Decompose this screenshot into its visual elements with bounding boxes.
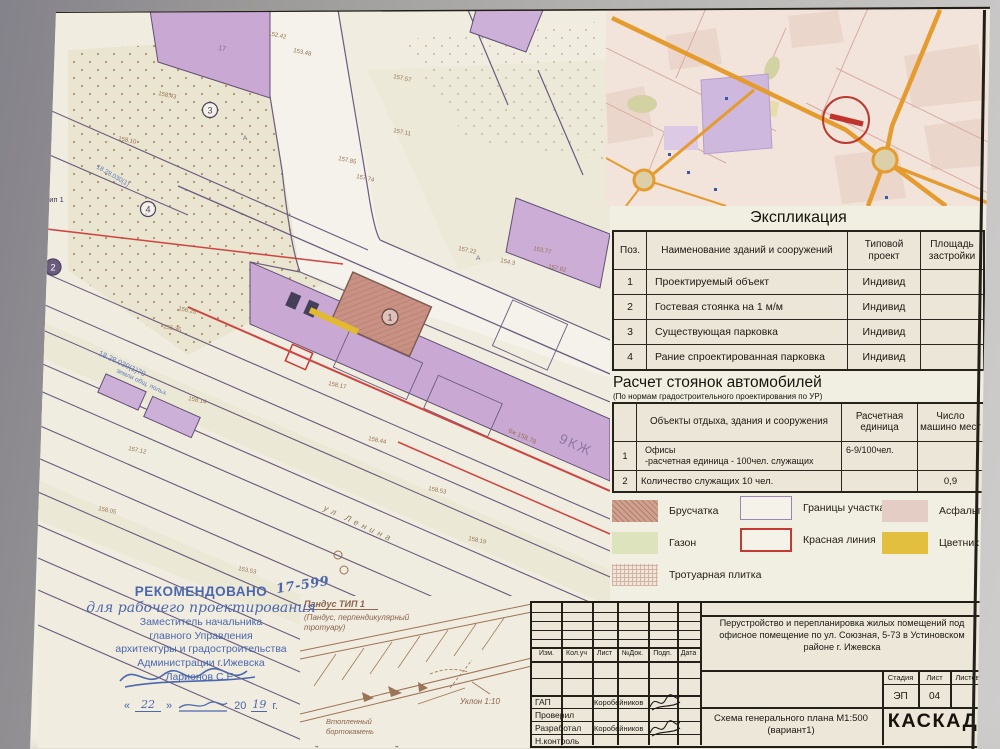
quote-close: »: [166, 700, 172, 712]
row-unit: [842, 470, 918, 491]
legend-item: Газон: [612, 532, 696, 554]
building-block: [664, 126, 698, 150]
year-prefix: 20: [234, 700, 246, 712]
slope-label: Уклон 1:10: [459, 697, 501, 706]
col-header: Число машино мест: [918, 404, 983, 441]
marker-3: 3: [207, 106, 212, 116]
photo-of-drawing-sheet: 1 3 4 2 157.85 157.74 157.11 158.43 158.…: [0, 0, 1000, 749]
row-name: Рание спроектированная парковка: [647, 344, 848, 369]
curb-label-2: бортокамень: [326, 727, 374, 736]
row-count: 0,9: [918, 470, 983, 491]
row-pos: 1: [614, 269, 647, 294]
asphalt-swatch: [882, 500, 928, 522]
row-project: Индивид: [848, 319, 921, 344]
company-logo: КАСКАД: [882, 711, 984, 733]
drawing-name-line: Схема генерального плана М1:500: [704, 713, 878, 725]
legend-item: Красная линия: [740, 528, 876, 552]
marker-1: 1: [387, 313, 392, 323]
role-razrabotal: Разработал: [535, 723, 581, 733]
stamp-title-row: РЕКОМЕНДОВАНО 17-599: [80, 584, 322, 599]
row-project: Индивид: [848, 294, 921, 319]
col-podp: Подп.: [649, 650, 676, 657]
row-pos: 2: [614, 294, 647, 319]
parking-table: Объекты отдыха, здания и сооружения Расч…: [612, 402, 985, 493]
row-name: Гостевая стоянка на 1 м/м: [647, 294, 848, 319]
row-count: [918, 441, 983, 470]
row-project: Индивид: [848, 269, 921, 294]
col-header: Типовой проект: [848, 232, 921, 269]
paving-swatch: [612, 500, 658, 522]
row-name-line2: -расчетная единица - 100чел. служащих: [645, 456, 814, 467]
road-point-a1: А: [243, 135, 248, 142]
stamp-date-row: « 22 » 20 19 г.: [80, 698, 322, 712]
row-name: Офисы -расчетная единица - 100чел. служа…: [637, 441, 842, 470]
year-suffix: г.: [272, 700, 278, 712]
site-boundary-swatch: [740, 496, 792, 520]
role-gap: ГАП: [535, 697, 551, 707]
row-name-line1: Офисы: [645, 445, 675, 456]
row-pos: 1: [614, 441, 637, 470]
vicinity-map: [606, 8, 988, 206]
signature-scribble: [115, 659, 265, 693]
stage-value: ЭП: [883, 691, 918, 702]
sheet-label: Лист: [919, 673, 950, 682]
legend-label: Цветник: [939, 537, 979, 549]
roundabout: [634, 170, 654, 190]
road-point-a2: А: [476, 255, 481, 262]
explication-title: Экспликация: [612, 209, 985, 227]
row-pos: 3: [614, 319, 647, 344]
sheet-value: 04: [919, 691, 950, 702]
green-patch: [627, 95, 657, 113]
legend-label: Красная линия: [803, 534, 876, 546]
row-name: Проектируемый объект: [647, 269, 848, 294]
stamp-title: РЕКОМЕНДОВАНО: [135, 584, 267, 599]
flowerbed-swatch: [882, 532, 928, 554]
legend-item: Брусчатка: [612, 500, 718, 522]
project-title: Перустройство и перепланировка жилых пом…: [704, 618, 980, 654]
parking-title: Расчет стоянок автомобилей: [613, 374, 913, 392]
signature-scribble: [648, 717, 682, 739]
legend-item: Цветник: [882, 532, 979, 554]
row-area: [921, 294, 983, 319]
name-gap: Коробейников: [594, 698, 643, 707]
row-pos: 4: [614, 344, 647, 369]
col-data: Дата: [678, 650, 699, 657]
stage-label: Стадия: [883, 673, 918, 682]
legend-item: Асфальт: [882, 500, 981, 522]
tile-swatch: [612, 564, 658, 586]
col-header: [614, 404, 637, 441]
stamp-line-1: Заместитель начальника: [80, 616, 322, 630]
role-nkontrol: Н.контроль: [535, 736, 579, 746]
large-building-block: [701, 74, 772, 154]
legend-label: Брусчатка: [669, 505, 718, 517]
row-name: Количество служащих 10 чел.: [637, 470, 842, 491]
title-block: Изм. Кол.уч Лист №Док. Подп. Дата ГАП Ко…: [530, 601, 987, 748]
stamp-purpose-handwritten: для рабочего проектирования: [80, 600, 322, 616]
row-name: Существующая парковка: [647, 319, 848, 344]
row-area: [921, 344, 983, 369]
legend-item: Тротуарная плитка: [612, 564, 761, 586]
row-unit: 6-9/100чел.: [842, 441, 918, 470]
sheets-label: Листов: [951, 673, 984, 682]
row-area: [921, 319, 983, 344]
drawing-variant: (вариант1): [704, 725, 878, 737]
approval-stamp: РЕКОМЕНДОВАНО 17-599 для рабочего проект…: [80, 584, 322, 712]
stamp-line-3: архитектуры и градостроительства: [80, 643, 322, 657]
marker-4: 4: [145, 205, 150, 215]
parking-subtitle: (По нормам градостроительного проектиров…: [613, 392, 913, 401]
building-17-label: 17: [218, 45, 227, 53]
signature-scribble: [648, 691, 682, 713]
role-proveril: Проверил: [535, 710, 574, 720]
col-header: Расчетная единица: [842, 404, 918, 441]
date-day-handwritten: 22: [135, 698, 161, 712]
marker-2: 2: [50, 263, 55, 273]
ramp-detail: Пандус ТИП 1 (Пандус, перпендикулярный т…: [300, 596, 532, 746]
col-header: Площадь застройки: [921, 232, 983, 269]
quote-open: «: [124, 700, 130, 712]
roundabout: [873, 148, 897, 172]
curb-label-1: Втопленный: [326, 717, 373, 726]
name-razrabotal: Коробейников: [594, 724, 643, 733]
explication-table: Поз. Наименование зданий и сооружений Ти…: [612, 230, 985, 371]
date-year-handwritten: 19: [251, 698, 267, 712]
lawn-swatch: [612, 532, 658, 554]
drawing-sheet: 1 3 4 2 157.85 157.74 157.11 158.43 158.…: [0, 0, 1000, 749]
stamp-signer-row: Ларионов С.Е.: [80, 671, 322, 685]
col-ndok: №Док.: [618, 650, 647, 657]
row-pos: 2: [614, 470, 637, 491]
month-scribble: [177, 698, 229, 712]
col-header: Поз.: [614, 232, 647, 269]
drawing-name: Схема генерального плана М1:500 (вариант…: [704, 713, 878, 737]
legend-item: Границы участка: [740, 496, 885, 520]
stamp-line-2: главного Управления: [80, 630, 322, 644]
col-koluch: Кол.уч: [562, 650, 591, 657]
legend-label: Газон: [669, 537, 696, 549]
row-project: Индивид: [848, 344, 921, 369]
red-line-swatch: [740, 528, 792, 552]
row-area: [921, 269, 983, 294]
col-izm: Изм.: [533, 650, 560, 657]
ramp-type-label: с тип 1: [40, 195, 64, 204]
col-list: Лист: [593, 650, 616, 657]
legend-label: Границы участка: [803, 502, 885, 514]
col-header: Объекты отдыха, здания и сооружения: [637, 404, 842, 441]
col-header: Наименование зданий и сооружений: [647, 232, 848, 269]
legend-label: Тротуарная плитка: [669, 569, 761, 581]
